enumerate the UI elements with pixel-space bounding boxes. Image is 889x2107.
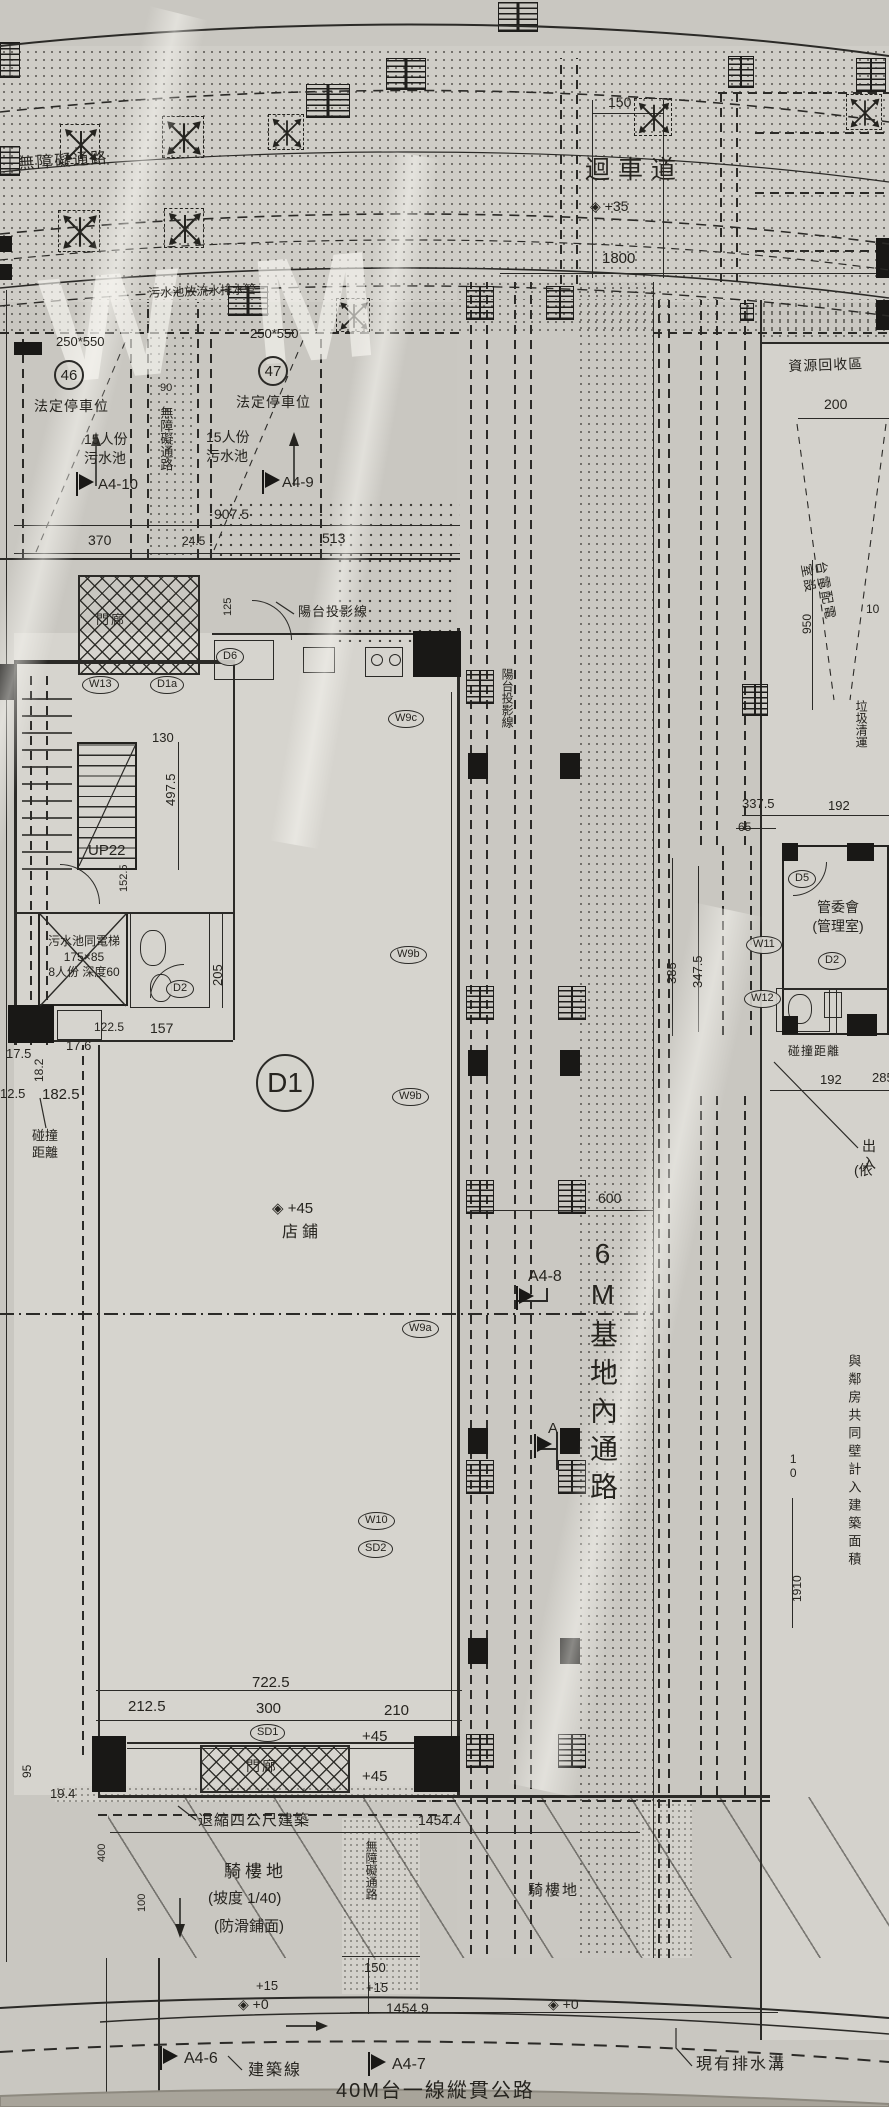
section-flag-marker [76, 472, 94, 496]
plan-label: A4-8 [528, 1268, 562, 1287]
turnaround-lane: 迴車道 [585, 156, 684, 186]
plan-label: 24.5 [182, 534, 205, 548]
tag-oval: W9b [392, 1088, 429, 1106]
plan-label: (坡度 1/40) [208, 1890, 281, 1908]
plan-label: 907.5 [214, 506, 249, 523]
plan-label: ◈ +35 [590, 198, 628, 215]
plan-label: 300 [256, 1700, 281, 1718]
plan-label: A4-10 [98, 476, 138, 494]
plan-label: 200 [824, 396, 847, 413]
plan-label: 130 [152, 730, 174, 745]
plan-label: +15 [256, 1978, 278, 1993]
sewage-tank-15p: 15人份 污水池 [84, 430, 146, 468]
plan-label: 10 [786, 1452, 800, 1480]
tag-oval: D6 [216, 648, 244, 666]
plan-label: 17.5 [6, 1046, 31, 1061]
plan-label: 285 [872, 1070, 889, 1085]
plan-label: (依 [854, 1162, 873, 1179]
plan-label: 250*550 [250, 326, 298, 341]
plan-label: 150 [364, 1960, 386, 1975]
plan-label: 1910 [790, 1575, 804, 1602]
plan-label: ◈ +0 [238, 1996, 269, 2013]
tag-oval: D2 [166, 980, 194, 998]
plan-label: 1800 [602, 250, 635, 268]
plan-label: 400 [96, 1844, 109, 1862]
tag-oval: W9c [388, 710, 424, 728]
tag-oval: D2 [818, 952, 846, 970]
plan-label: +15 [366, 1980, 388, 1995]
plan-label: 497.5 [163, 773, 178, 806]
plan-label: 1454.9 [386, 2000, 429, 2017]
balcony-projection-line: 陽台投影線 [298, 604, 368, 619]
plan-label: A4-9 [282, 474, 314, 492]
sewage-tank-15p: 15人份 污水池 [206, 428, 268, 466]
plan-label: 90 [160, 382, 172, 395]
plan-label: 210 [384, 1702, 409, 1720]
plan-label: 370 [88, 532, 111, 549]
tag-oval: W10 [358, 1512, 395, 1530]
garbage-note: 垃圾清運 [854, 700, 868, 748]
accessible-path-strip: 無障礙通路 [158, 406, 173, 471]
shared-wall-note: 與鄰房共同壁計入建築面積 [846, 1354, 861, 1570]
building-line: 建築線 [248, 2062, 302, 2081]
existing-drain: 現有排水溝 [696, 2056, 786, 2075]
collision-distance: 碰撞 距離 [32, 1128, 62, 1162]
plan-label: 513 [322, 530, 345, 547]
photo-watermark: W M [34, 213, 398, 420]
plan-label: 157 [150, 1020, 173, 1037]
plan-label: 152.5 [118, 864, 131, 892]
plan-label: 722.5 [252, 1674, 290, 1692]
section-flag-marker [368, 2052, 386, 2076]
plan-label: 95 [20, 1765, 34, 1778]
plan-label: 182.5 [42, 1086, 80, 1104]
section-flag-marker [262, 470, 280, 494]
plan-label: 65 [738, 820, 751, 834]
tag-oval: W12 [744, 990, 781, 1008]
plan-label: 192 [820, 1072, 842, 1087]
legal-parking-47: 法定停車位 [236, 394, 311, 411]
6m-site-access-road: 6M基地內通路 [586, 1238, 619, 1510]
ref-circle: 46 [54, 360, 84, 390]
tag-oval: D1a [150, 676, 184, 694]
plan-label: 122.5 [94, 1020, 124, 1034]
shop: 店鋪 [282, 1224, 322, 1243]
plan-label: 347.5 [690, 955, 705, 988]
tag-oval: D5 [788, 870, 816, 888]
tag-oval: SD2 [358, 1540, 393, 1558]
plan-label: A4-7 [392, 2056, 426, 2075]
tag-oval: W9b [390, 946, 427, 964]
arcade-land: 騎樓地 [528, 1882, 579, 1900]
plan-label: 150 [608, 94, 631, 111]
plan-label: 600 [598, 1190, 621, 1207]
plan-label: 17.6 [66, 1038, 91, 1053]
plan-label: 192 [828, 798, 850, 813]
plan-label: 125 [222, 598, 235, 616]
plan-label: 385 [664, 962, 679, 984]
floor-plan-canvas: 4647D1D6W13D1aW9cW9bD2W9bW9aW10SD2SD1D5W… [0, 0, 889, 2107]
plan-label: 337.5 [742, 796, 775, 811]
arcade-land: 騎樓地 [224, 1862, 287, 1882]
plan-label: (防滑鋪面) [214, 1918, 284, 1936]
section-flag-marker [534, 1434, 552, 1458]
ref-circle: 47 [258, 356, 288, 386]
plan-label: 250*550 [56, 334, 104, 349]
plan-label: ◈ +45 [272, 1200, 313, 1218]
plan-label: +45 [362, 1768, 387, 1786]
recycling-area: 資源回收區 [788, 355, 864, 374]
tag-oval: W9a [402, 1320, 439, 1338]
tag-oval: W13 [82, 676, 119, 694]
plan-label: 205 [210, 964, 225, 986]
management-room: 管委會 (管理室) [794, 898, 882, 936]
legal-parking-46: 法定停車位 [34, 398, 109, 415]
tag-oval: W11 [746, 936, 782, 954]
40m-highway: 40M台一線縱貫公路 [336, 2080, 535, 2104]
section-flag-marker [160, 2046, 178, 2070]
collision-distance: 碰撞距離 [788, 1044, 840, 1058]
elevator-tank-note: 污水池同電梯 175×85 8人份 深度60 [38, 934, 130, 981]
porch: 門廊 [246, 1758, 278, 1775]
plan-label: 100 [136, 1894, 149, 1912]
stair-up22: UP22 [88, 842, 126, 860]
plan-label: 19.4 [50, 1786, 75, 1801]
setback-4m-note: 退縮四公尺建築 [198, 1812, 310, 1830]
balcony-projection-line: 陽台投影線 [500, 668, 514, 728]
plan-label: ◈ +0 [548, 1996, 579, 2013]
plan-label: +45 [362, 1728, 387, 1746]
accessible-path-arcade: 無障礙通路 [364, 1840, 378, 1900]
plan-label: 212.5 [128, 1698, 166, 1716]
plan-label: 12.5 [0, 1086, 25, 1101]
section-flag-marker [516, 1286, 534, 1310]
tag-oval: SD1 [250, 1724, 285, 1742]
porch: 門廊 [96, 612, 126, 627]
plan-label: 1454.4 [418, 1812, 461, 1829]
plan-label: A4-6 [184, 2050, 218, 2069]
plan-label: 10 [866, 602, 879, 616]
plan-label: 18.2 [32, 1059, 46, 1082]
ref-circle: D1 [256, 1054, 314, 1112]
